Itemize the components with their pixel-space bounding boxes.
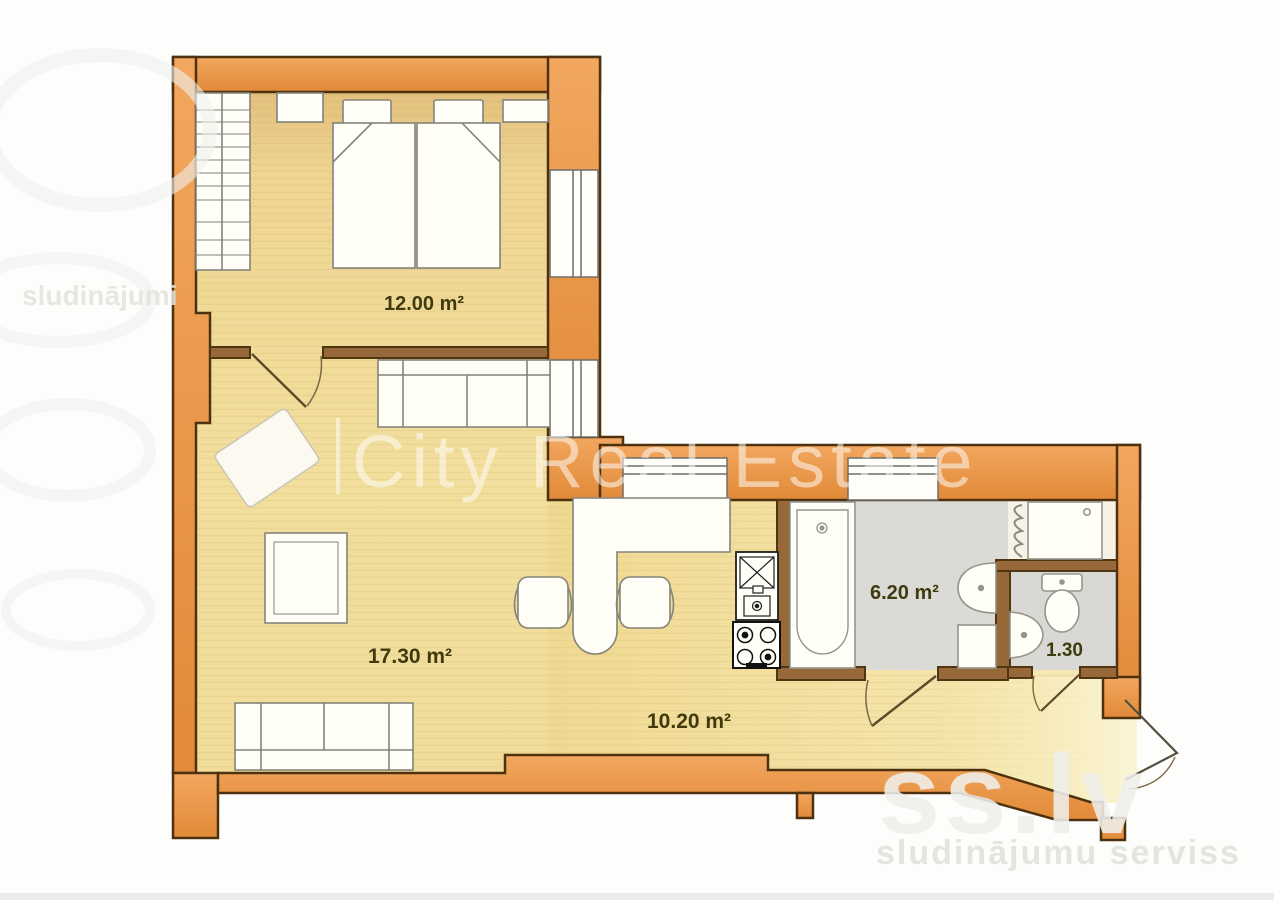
chair-left [515,577,572,628]
wc-area-label: 1.30 [1046,640,1083,661]
wall-top [173,57,600,92]
nightstand-left [277,93,323,122]
pillow-right [434,100,483,124]
nightstand-right [503,100,548,122]
coffee-table [265,533,347,623]
bedroom-wall [323,347,548,358]
washing-machine [1028,502,1102,559]
bedroom-window-1 [550,170,598,277]
bedroom-wall-stub [210,347,250,358]
floorplan-drawing: 12.00 m² 17.30 m² 10.20 m² 6.20 m² 1.30 … [0,0,1274,900]
sofa-top [378,360,550,427]
bedroom-area-label: 12.00 m² [384,293,464,315]
wall-entry-jamb [1103,677,1140,718]
hall-area-label: 10.20 m² [647,710,731,733]
bed-right [417,100,500,268]
wall-corner-sw [173,773,218,838]
image-bottom-edge [0,893,1274,900]
toilet [1042,574,1082,632]
bath-south-wall-right [938,667,1008,680]
wall-bottom-stub [797,793,813,818]
bathtub [790,502,855,668]
watermark-side-text: sludinājumi [22,280,178,311]
bath-wc-wall [996,560,1010,667]
bathroom-area-label: 6.20 m² [870,582,939,604]
wc-north-wall [996,560,1117,571]
sofa-bottom [235,703,413,770]
wall-right [1117,445,1140,697]
watermark-divider-bar [336,418,340,494]
bath-south-wall-left [777,667,865,680]
chair-right [617,577,674,628]
watermark-tagline: sludinājumu serviss [876,834,1241,872]
pillow-left [343,100,391,124]
bed-left [333,100,415,268]
kitchen-sink [736,552,778,620]
wc-south-wall-right [1080,667,1117,678]
living-area-label: 17.30 m² [368,645,452,668]
floorplan-page: 12.00 m² 17.30 m² 10.20 m² 6.20 m² 1.30 … [0,0,1274,900]
wc-south-wall-left [1008,667,1032,678]
bathroom-cabinet [958,625,996,668]
watermark-city-real-estate: City Real Estate [352,420,979,503]
stove [733,622,780,668]
